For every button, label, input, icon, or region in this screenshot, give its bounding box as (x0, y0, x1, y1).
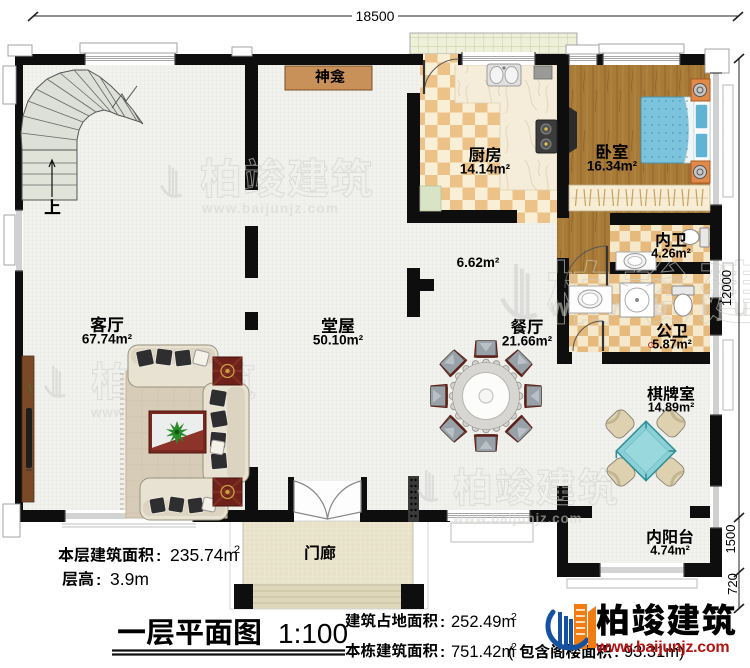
svg-text::: : (156, 548, 161, 565)
svg-text:5.87m²: 5.87m² (652, 337, 692, 351)
svg-text:www.baijunjz.com: www.baijunjz.com (452, 511, 582, 526)
svg-text:18500: 18500 (356, 8, 395, 24)
svg-text::: : (96, 572, 101, 589)
svg-text:1:100: 1:100 (278, 618, 348, 649)
svg-text:21.66m²: 21.66m² (502, 333, 553, 348)
svg-text::: : (440, 644, 445, 661)
svg-text:4.74m²: 4.74m² (650, 543, 690, 557)
svg-text:www.baijunjz.com: www.baijunjz.com (595, 639, 729, 656)
svg-text:3.9m: 3.9m (110, 569, 149, 589)
svg-text:252.49m: 252.49m (451, 613, 515, 631)
svg-text:14.14m²: 14.14m² (460, 161, 511, 176)
svg-text:2: 2 (511, 611, 517, 623)
svg-text:235.74m: 235.74m (170, 545, 238, 565)
svg-text:751.42m: 751.42m (451, 643, 515, 661)
svg-text:50.10m²: 50.10m² (313, 333, 364, 348)
svg-text:1500: 1500 (723, 525, 738, 554)
svg-text::: : (440, 614, 445, 631)
svg-text:6.62m²: 6.62m² (457, 255, 500, 270)
svg-text:67.74m²: 67.74m² (82, 332, 133, 347)
svg-text:12000: 12000 (719, 270, 734, 306)
svg-text:2: 2 (234, 544, 240, 556)
svg-text:14.89m²: 14.89m² (648, 400, 695, 414)
svg-text:(: ( (508, 644, 514, 661)
svg-text:16.34m²: 16.34m² (587, 158, 638, 173)
svg-text:4.26m²: 4.26m² (651, 246, 691, 260)
svg-text:www.baijunjz.com: www.baijunjz.com (201, 201, 339, 216)
svg-text:720: 720 (725, 573, 740, 595)
